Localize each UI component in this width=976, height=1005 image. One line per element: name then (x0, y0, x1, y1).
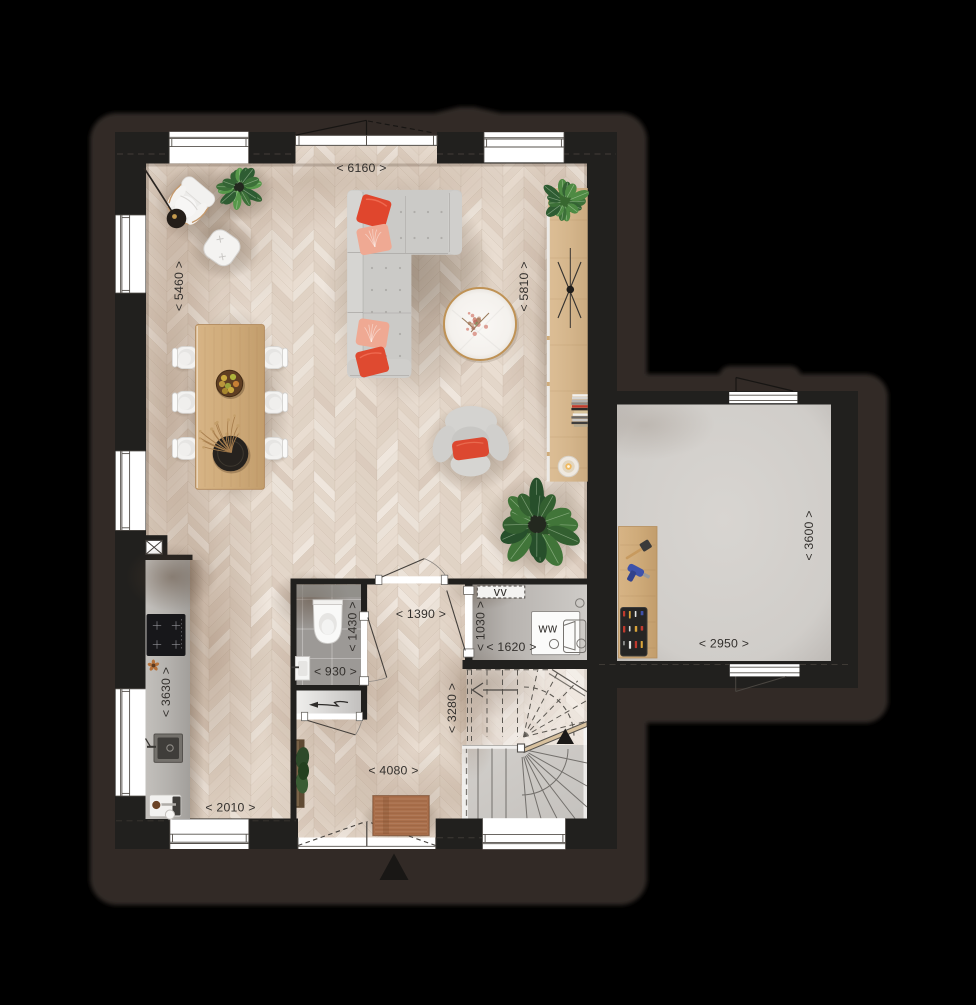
svg-text:< 6160 >: < 6160 > (336, 161, 386, 175)
svg-text:< 3600 >: < 3600 > (802, 510, 816, 560)
svg-text:vv: vv (494, 585, 508, 599)
svg-text:< 5460 >: < 5460 > (172, 261, 186, 311)
svg-text:< 930 >: < 930 > (314, 665, 357, 679)
svg-text:< 4080 >: < 4080 > (368, 764, 418, 778)
svg-text:< 3630 >: < 3630 > (159, 667, 173, 717)
svg-text:< 3280 >: < 3280 > (445, 683, 459, 733)
svg-text:< 1390 >: < 1390 > (396, 607, 446, 621)
svg-text:< 1620 >: < 1620 > (486, 640, 536, 654)
svg-text:ww: ww (537, 621, 558, 635)
svg-text:< 5810 >: < 5810 > (517, 261, 531, 311)
svg-text:< 2950 >: < 2950 > (699, 637, 749, 651)
svg-text:< 1430 >: < 1430 > (346, 601, 360, 651)
svg-text:< 2010 >: < 2010 > (205, 801, 255, 815)
